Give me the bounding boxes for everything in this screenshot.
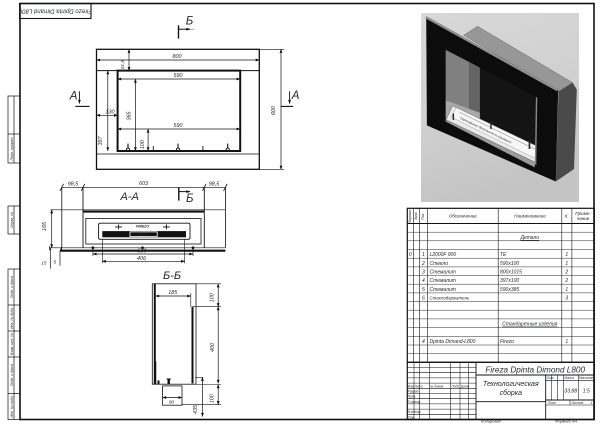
svg-text:4: 4 [422, 339, 425, 345]
svg-text:165: 165 [42, 221, 48, 231]
svg-text:Firezo: Firezo [500, 339, 514, 345]
svg-text:Т.контр.: Т.контр. [408, 400, 421, 404]
svg-text:590: 590 [174, 73, 183, 79]
svg-text:сборка: сборка [500, 389, 523, 397]
svg-text:Стемалит: Стемалит [430, 287, 456, 293]
svg-text:101,5: 101,5 [120, 60, 125, 72]
svg-text:Обозначение: Обозначение [449, 214, 478, 219]
svg-text:600: 600 [271, 106, 277, 115]
svg-text:1: 1 [422, 252, 425, 258]
svg-text:185: 185 [168, 290, 178, 296]
svg-text:Разраб.: Разраб. [408, 390, 420, 394]
svg-text:5: 5 [422, 287, 425, 293]
svg-text:2: 2 [564, 278, 568, 284]
svg-text:Зона: Зона [414, 212, 418, 220]
svg-text:1:5: 1:5 [583, 389, 590, 395]
svg-text:А: А [69, 91, 78, 103]
svg-text:3: 3 [422, 270, 425, 276]
svg-text:0: 0 [409, 252, 412, 258]
svg-text:6: 6 [422, 296, 425, 302]
svg-text:А: А [291, 90, 300, 102]
svg-text:Масштаб: Масштаб [579, 376, 594, 380]
svg-text:Инв. № дубл.: Инв. № дубл. [10, 307, 14, 329]
svg-text:Листов: Листов [571, 401, 584, 405]
svg-text:590: 590 [174, 123, 183, 129]
svg-text:130: 130 [106, 110, 115, 116]
svg-text:А-А: А-А [120, 191, 139, 203]
svg-text:400: 400 [210, 343, 216, 352]
svg-text:1: 1 [565, 287, 568, 293]
svg-text:Поз.: Поз. [421, 213, 425, 220]
svg-text:Перв. примен.: Перв. примен. [10, 137, 14, 161]
svg-text:Наименование: Наименование [514, 214, 546, 219]
svg-text:Fireza Dpinta Dimond L800: Fireza Dpinta Dimond L800 [485, 365, 585, 374]
svg-text:2: 2 [564, 270, 568, 276]
svg-text:397: 397 [98, 136, 104, 146]
svg-text:Копировал: Копировал [481, 419, 502, 424]
svg-text:Стемалит: Стемалит [430, 278, 456, 284]
svg-text:Dpinta Dimand-L800: Dpinta Dimand-L800 [430, 339, 476, 345]
svg-text:Стеклодержатель: Стеклодержатель [430, 296, 470, 301]
svg-text:Утв.: Утв. [408, 415, 415, 419]
svg-text:FIREZO: FIREZO [138, 233, 150, 237]
svg-text:Подп. и дата: Подп. и дата [10, 364, 14, 387]
svg-text:Н.контр.: Н.контр. [408, 410, 422, 414]
svg-text:800х1015: 800х1015 [500, 270, 522, 276]
svg-text:90: 90 [169, 400, 175, 406]
svg-text:Справ. №: Справ. № [10, 212, 14, 228]
svg-text:15: 15 [41, 261, 47, 267]
svg-text:Стекло: Стекло [430, 261, 449, 267]
svg-text:Б: Б [186, 16, 194, 28]
svg-text:Технологическая: Технологическая [483, 381, 539, 388]
svg-text:603: 603 [139, 181, 148, 187]
svg-text:Подп. и дата: Подп. и дата [10, 276, 14, 299]
svg-text:Детали: Детали [519, 235, 539, 241]
svg-text:Пров.: Пров. [408, 395, 417, 399]
svg-text:100: 100 [140, 140, 146, 149]
svg-text:435: 435 [193, 404, 199, 414]
svg-text:Стандартные изделия: Стандартные изделия [502, 322, 557, 328]
svg-text:5: 5 [53, 260, 56, 266]
svg-text:98,5: 98,5 [68, 181, 79, 187]
svg-text:100: 100 [209, 394, 215, 403]
svg-text:590х385: 590х385 [500, 287, 519, 293]
svg-text:Стемалит: Стемалит [430, 270, 456, 276]
svg-text:365: 365 [127, 111, 133, 121]
svg-text:1: 1 [591, 401, 593, 405]
svg-text:Firezo Dpinta Dimand L800: Firezo Dpinta Dimand L800 [18, 8, 92, 14]
svg-text:397х100: 397х100 [500, 278, 519, 284]
svg-text:Подп.: Подп. [452, 384, 461, 388]
svg-text:3: 3 [565, 296, 568, 302]
svg-text:FIREZO: FIREZO [136, 224, 149, 228]
svg-text:Взам. инв. №: Взам. инв. № [10, 333, 14, 355]
svg-text:Лит.: Лит. [546, 376, 555, 380]
svg-text:Формат: Формат [408, 209, 412, 223]
svg-text:1: 1 [565, 252, 568, 258]
svg-text:4: 4 [422, 278, 425, 284]
svg-text:590х100: 590х100 [500, 261, 519, 267]
svg-text:500: 500 [138, 248, 147, 254]
svg-text:1: 1 [565, 339, 568, 345]
svg-text:Инв. № подл.: Инв. № подл. [10, 395, 14, 417]
svg-text:Б: Б [186, 193, 194, 205]
svg-text:Изм.Лист: Изм.Лист [408, 384, 423, 388]
svg-text:Масса: Масса [565, 376, 575, 380]
svg-text:чание: чание [577, 216, 590, 221]
svg-text:ТЕ: ТЕ [500, 252, 507, 258]
svg-text:2: 2 [421, 261, 425, 267]
svg-text:Дата: Дата [460, 384, 470, 388]
svg-text:100: 100 [209, 293, 215, 302]
svg-text:406: 406 [137, 256, 146, 262]
svg-text:1: 1 [565, 261, 568, 267]
svg-text:Формат А4: Формат А4 [555, 419, 578, 424]
svg-text:№ докум.: № докум. [430, 384, 444, 388]
svg-text:800: 800 [173, 54, 182, 60]
svg-text:Б-Б: Б-Б [163, 270, 181, 282]
svg-text:33,88: 33,88 [564, 389, 577, 395]
svg-text:Лист: Лист [547, 401, 557, 405]
svg-text:L2000F 900: L2000F 900 [430, 252, 457, 258]
svg-text:К.: К. [565, 214, 569, 219]
svg-text:98,5: 98,5 [209, 181, 220, 187]
